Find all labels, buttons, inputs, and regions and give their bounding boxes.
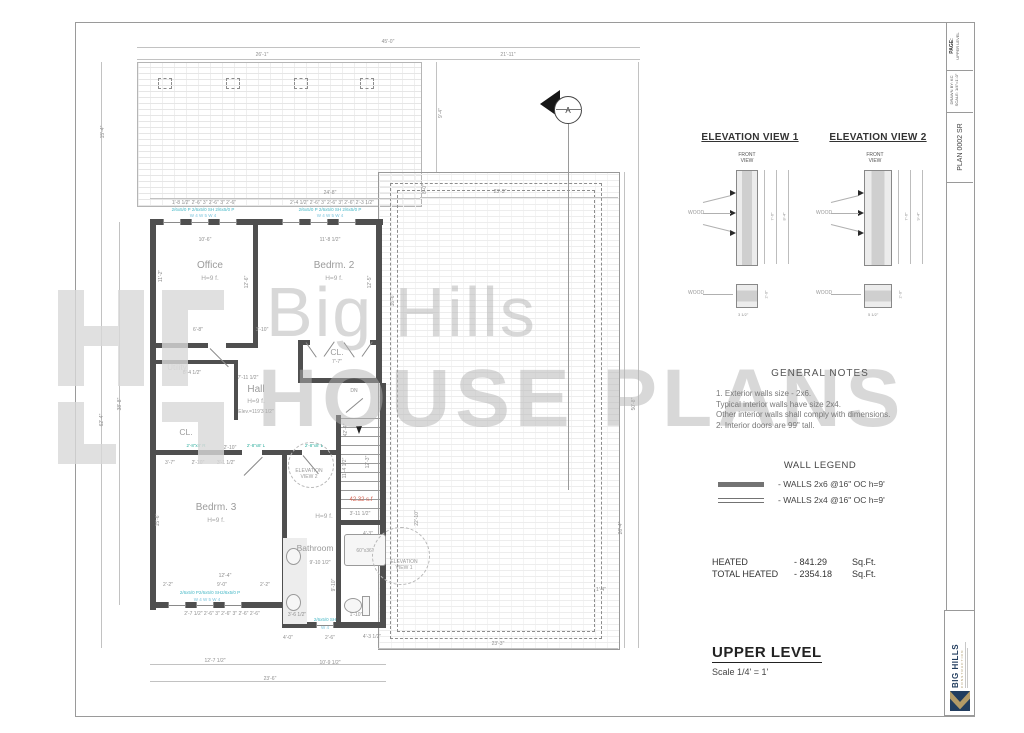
plan-label: 3'-10" (256, 327, 269, 333)
general-note-line: 2. Interior doors are 99" tall. (716, 421, 940, 432)
plan-label: ELEVATION VIEW 1 (390, 559, 417, 571)
plan-label: 2'-8"x8' L (247, 443, 265, 449)
fastener-mark (730, 190, 736, 196)
elevation-view-2: ELEVATION VIEW 2 FRONT VIEW WOOD 7'-6" 9… (816, 132, 940, 332)
plan-label: 2'-8"x8' L (305, 443, 323, 449)
plan-label: 8'-4 1/2" (183, 370, 201, 376)
plan-label: 7'-7" (332, 359, 342, 365)
plan-label: 9'-10" (331, 579, 337, 592)
plan-label: W 4 W 5 W 4 (194, 597, 221, 603)
plan-label: Elev.=119'3 1/2" (238, 409, 274, 415)
wall-plan-section (864, 284, 892, 308)
plan-label: Office (197, 263, 223, 269)
plan-label: 2'-10" (192, 460, 205, 466)
dimension-line (898, 170, 899, 264)
plan-label: H=9 f. (201, 276, 219, 282)
chevron-icon (950, 691, 970, 711)
plan-label: W 4 (321, 625, 329, 631)
plan-label: W 4 W 5 W 4 (317, 213, 344, 219)
wall-legend-row: - WALLS 2x4 @16" OC h=9' (718, 495, 940, 505)
plan-label: 3'-11 1/2" (350, 511, 371, 517)
wall-legend-rows: - WALLS 2x6 @16" OC h=9'- WALLS 2x4 @16"… (700, 479, 940, 505)
plan-label: 12'-7 1/2" (204, 658, 225, 664)
wall-legend-title: WALL LEGEND (700, 460, 940, 471)
leader-line (831, 213, 859, 214)
plan-label: H=9 f. (207, 518, 225, 524)
plan-label: 26'-4" (618, 522, 624, 535)
titleblock-divider (946, 112, 973, 113)
plan-label: 3'-6 1/2" (288, 612, 306, 618)
plan-label: 10'-6" (199, 237, 212, 243)
plan-label: 62'-4" (99, 414, 105, 427)
plan-label: 4'-3" (363, 531, 373, 537)
plan-label: Bedrm. 3 (196, 505, 237, 511)
plan-label: H=9 f. (247, 399, 265, 405)
dimension-line (788, 170, 789, 264)
plan-label: 2'-7 1/2" 2'-6" 3" 2'-6" 3" 2'-6" 2'-6" (184, 611, 260, 617)
leader-line (831, 294, 861, 295)
plan-label: W 4 W 5 W 4 (190, 213, 217, 219)
plan-label: 8'-0" (422, 184, 428, 194)
plan-label: 3'-1 1/2" (217, 460, 235, 466)
plan-label: 15'-4" (100, 126, 106, 139)
area-unit: Sq.Ft. (852, 568, 876, 580)
company-subtitle: CONSTRUCTION (960, 642, 964, 688)
plan-number: PLAN 0002 SR (949, 114, 973, 180)
general-note-line: Other interior walls shall comply with d… (716, 410, 940, 421)
plan-label: 42.32 s.f (349, 497, 372, 503)
plan-label: 12'-3" (365, 456, 371, 469)
plan-label: 23'-3" (492, 641, 505, 647)
plan-label: 38'-8" (117, 398, 123, 411)
plan-label: 16'-6" (390, 294, 396, 307)
plan-label: H=9 f. (315, 514, 333, 520)
plan-label: 2/6x5/0 P2/6x5/0 SH2/6x5/0 P (180, 590, 240, 596)
front-view-label: FRONT VIEW (732, 152, 762, 164)
leader-line (703, 195, 730, 203)
wall-swatch (718, 498, 764, 503)
wood-label: WOOD (816, 210, 832, 216)
plan-label: 12'-5" (367, 276, 373, 289)
plan-label: Hall (247, 387, 264, 393)
sheet-title-block: UPPER LEVEL Scale 1/4' = 1' (712, 644, 822, 677)
wall-legend-label: - WALLS 2x6 @16" OC h=9' (778, 479, 885, 489)
dimension-line (764, 170, 765, 264)
elevation-view-1-title: ELEVATION VIEW 1 (688, 132, 812, 143)
plan-label: 2/6x5/0 SH (314, 617, 336, 623)
dimension-label: 2'-0" (897, 291, 902, 299)
plan-label: 4'-3 1/2" (363, 634, 381, 640)
plan-label: Bedrm. 2 (314, 263, 355, 269)
titleblock-drawn-cell: DRAWN BY: KC SCALE: 1/4"=1'-0" (949, 70, 973, 110)
general-notes: GENERAL NOTES 1. Exterior walls size - 2… (700, 368, 940, 431)
front-view-label: FRONT VIEW (860, 152, 890, 164)
wood-label: WOOD (688, 210, 704, 216)
fastener-mark (858, 230, 864, 236)
area-value: - 2354.18 (794, 568, 852, 580)
plan-label: CL. (179, 429, 192, 435)
plan-label: 2'-8"x8' R (186, 443, 205, 449)
plan-label: 9'-4" (438, 108, 444, 118)
plan-label: 45'-0" (382, 39, 395, 45)
wall-legend: WALL LEGEND - WALLS 2x6 @16" OC h=9'- WA… (700, 460, 940, 505)
floor-plan: A OfficeH=9 f.Bedrm. 2H=9 f.Bedrm. 3H=9 … (0, 0, 1024, 733)
wood-label: WOOD (688, 290, 704, 296)
plan-label: Bathroom (297, 545, 334, 551)
dimension-line (922, 170, 923, 264)
plan-label: 2'-10" (224, 445, 237, 451)
plan-label: 7'-11 1/2" (238, 375, 259, 381)
plan-label: 60"x36" (356, 548, 373, 554)
heated-areas: HEATED- 841.29Sq.Ft.TOTAL HEATED- 2354.1… (712, 556, 942, 580)
drawing-sheet: A OfficeH=9 f.Bedrm. 2H=9 f.Bedrm. 3H=9 … (0, 0, 1024, 733)
titleblock-page-cell: PAGE: UPPER LEVEL (949, 24, 973, 68)
plan-label: 6'-8" (193, 327, 203, 333)
scale-note: SCALE: 1/4"=1'-0" (954, 70, 959, 110)
plan-label: 12'-4" (219, 573, 232, 579)
leader-line (703, 213, 731, 214)
plan-label: 12'-6" (244, 276, 250, 289)
plan-label: 3'-7" (165, 460, 175, 466)
sheet-title: UPPER LEVEL (712, 644, 822, 663)
dimension-label: 5 1/2" (868, 312, 878, 317)
plan-label: 9'-10 1/2" (309, 560, 330, 566)
plan-label: 11'-4 1/2" (342, 458, 348, 479)
plan-label: 23'-3" (494, 189, 507, 195)
plan-labels: OfficeH=9 f.Bedrm. 2H=9 f.Bedrm. 3H=9 f.… (0, 0, 1024, 733)
titleblock-plan-cell: PLAN 0002 SR (949, 114, 973, 180)
company-name: BIG HILLS (952, 642, 960, 688)
sheet-scale: Scale 1/4' = 1' (712, 667, 822, 677)
dimension-label: 8'-4" (781, 213, 786, 221)
wall-swatch (718, 482, 764, 487)
area-label: TOTAL HEATED (712, 568, 794, 580)
plan-label: ELEVATION VIEW 2 (295, 468, 322, 480)
plan-label: H=9 f. (325, 276, 343, 282)
area-label: HEATED (712, 556, 794, 568)
plan-label: DN (350, 388, 357, 394)
plan-label: 1'-8 1/2" 2'-6" 3" 2'-6" 3" 2'-6" (172, 200, 236, 206)
company-logo: BIG HILLS CONSTRUCTION (947, 611, 973, 711)
wall-legend-label: - WALLS 2x4 @16" OC h=9' (778, 495, 885, 505)
plan-label: 26'-1" (256, 52, 269, 58)
titleblock-divider (946, 182, 973, 183)
area-row: TOTAL HEATED- 2354.18Sq.Ft. (712, 568, 942, 580)
plan-label: 4'-0" (283, 635, 293, 641)
plan-label: 2'-2" (260, 582, 270, 588)
plan-label: 42'-4" (343, 424, 349, 437)
plan-label: 23'-6" (264, 676, 277, 682)
plan-label: 10'-9 1/2" (319, 660, 340, 666)
general-note-line: 1. Exterior walls size - 2x6. (716, 389, 940, 400)
plan-label: 22'-10" (414, 510, 420, 526)
dimension-label: 7'-6" (769, 213, 774, 221)
plan-label: 21'-11" (500, 52, 515, 58)
dimension-label: 7'-6" (903, 213, 908, 221)
area-unit: Sq.Ft. (852, 556, 876, 568)
wall-section-elevation (736, 170, 758, 266)
wall-legend-row: - WALLS 2x6 @16" OC h=9' (718, 479, 940, 489)
fastener-mark (858, 190, 864, 196)
plan-label: 9'-0" (217, 582, 227, 588)
leader-line (703, 224, 730, 232)
fastener-mark (730, 230, 736, 236)
plan-label: 50'-8" (631, 398, 637, 411)
company-address-line (965, 642, 966, 688)
elevation-view-1: ELEVATION VIEW 1 FRONT VIEW WOOD 7'-6" 8… (688, 132, 812, 332)
elevation-view-2-title: ELEVATION VIEW 2 (816, 132, 940, 143)
leader-line (831, 195, 858, 203)
plan-label: 11'-8 1/2" (320, 237, 341, 243)
plan-label: 11'-2" (158, 270, 164, 282)
leader-line (703, 294, 733, 295)
dimension-label: 9'-4" (915, 213, 920, 221)
wall-plan-section (736, 284, 758, 308)
plan-label: 24'-8" (324, 190, 337, 196)
page-value: UPPER LEVEL (955, 24, 960, 68)
dimension-label: 2'-0" (763, 291, 768, 299)
company-logo-icon (950, 691, 970, 711)
area-rows: HEATED- 841.29Sq.Ft.TOTAL HEATED- 2354.1… (712, 556, 942, 580)
company-address-line (967, 648, 968, 688)
general-note-line: Typical interior walls have size 2x4. (716, 400, 940, 411)
area-value: - 841.29 (794, 556, 852, 568)
plan-label: 1'-10" (350, 612, 363, 618)
plan-label: 2'-2" (163, 582, 173, 588)
plan-label: 1'-4" (596, 587, 606, 593)
plan-label: 2'-6" (325, 635, 335, 641)
general-notes-title: GENERAL NOTES (700, 368, 940, 379)
dimension-label: 3 1/2" (738, 312, 748, 317)
plan-label: 2'-4 1/2" 2'-6" 3" 2'-6" 3" 2'-6" 2'-3 1… (290, 200, 374, 206)
plan-label: 15'-6" (155, 514, 161, 527)
dimension-line (910, 170, 911, 264)
leader-line (831, 224, 858, 232)
dimension-line (776, 170, 777, 264)
plan-label: CL. (330, 349, 343, 355)
wood-label: WOOD (816, 290, 832, 296)
wall-section-elevation (864, 170, 892, 266)
general-notes-lines: 1. Exterior walls size - 2x6.Typical int… (700, 389, 940, 431)
area-row: HEATED- 841.29Sq.Ft. (712, 556, 942, 568)
